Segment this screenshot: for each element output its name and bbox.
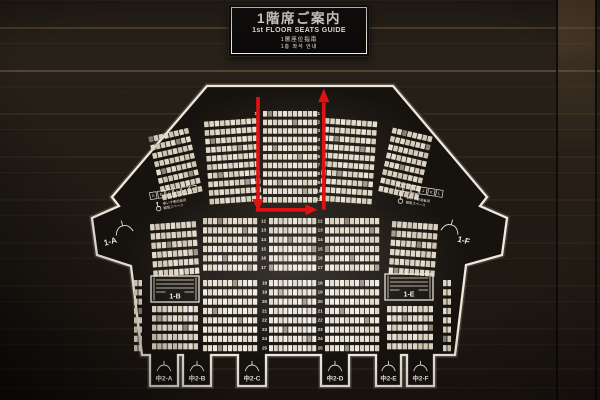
seat bbox=[408, 343, 412, 349]
glare-overlay bbox=[170, 85, 430, 225]
seat bbox=[413, 343, 417, 349]
seat bbox=[152, 334, 156, 340]
seat bbox=[443, 327, 447, 333]
seat bbox=[447, 327, 451, 333]
seat bbox=[443, 345, 447, 351]
seat bbox=[138, 345, 142, 351]
seat bbox=[152, 325, 156, 331]
seat bbox=[162, 343, 166, 349]
seat bbox=[138, 336, 142, 342]
seat bbox=[429, 343, 433, 349]
seat bbox=[148, 136, 154, 142]
entrance-label-中2-F: 中2-F bbox=[413, 374, 429, 383]
seating-map: ABCDEF車いす使用者用観覧スペースGHIJKL車いす使用者用観覧スペース 1… bbox=[0, 0, 600, 400]
seat bbox=[423, 343, 427, 349]
seating-guide-photo: 1階席ご案内 1st FLOOR SEATS GUIDE 1層座位指南 1층 좌… bbox=[0, 0, 600, 400]
section-label-1B: 1-B bbox=[169, 294, 180, 301]
seat bbox=[443, 317, 447, 323]
entrance-label-中2-A: 中2-A bbox=[156, 374, 173, 383]
seat bbox=[194, 343, 198, 349]
seat bbox=[418, 334, 422, 340]
seat bbox=[134, 317, 138, 323]
seat bbox=[418, 343, 422, 349]
section-label-1E: 1-E bbox=[404, 292, 415, 299]
seat bbox=[153, 135, 159, 141]
seat bbox=[162, 334, 166, 340]
entrance-label-中2-E: 中2-E bbox=[380, 374, 397, 383]
seat bbox=[157, 334, 161, 340]
entrance-label-中2-C: 中2-C bbox=[244, 374, 261, 383]
seat bbox=[134, 336, 138, 342]
seat bbox=[183, 343, 187, 349]
seat bbox=[138, 317, 142, 323]
seat bbox=[447, 336, 451, 342]
seat bbox=[413, 334, 417, 340]
seat bbox=[397, 343, 401, 349]
entrance-label-中2-D: 中2-D bbox=[327, 374, 344, 383]
seat bbox=[429, 334, 433, 340]
seat bbox=[392, 343, 396, 349]
seat bbox=[168, 343, 172, 349]
seat bbox=[134, 327, 138, 333]
seat bbox=[134, 308, 138, 314]
seat bbox=[152, 343, 156, 349]
seat bbox=[447, 317, 451, 323]
seat bbox=[138, 327, 142, 333]
seat bbox=[173, 343, 177, 349]
seat bbox=[168, 334, 172, 340]
entrance-label-中2-B: 中2-B bbox=[189, 374, 206, 383]
seat bbox=[157, 343, 161, 349]
seat bbox=[134, 345, 138, 351]
seat bbox=[423, 334, 427, 340]
seat bbox=[403, 343, 407, 349]
seat bbox=[447, 345, 451, 351]
seat bbox=[188, 343, 192, 349]
seat bbox=[178, 343, 182, 349]
seat bbox=[443, 336, 447, 342]
